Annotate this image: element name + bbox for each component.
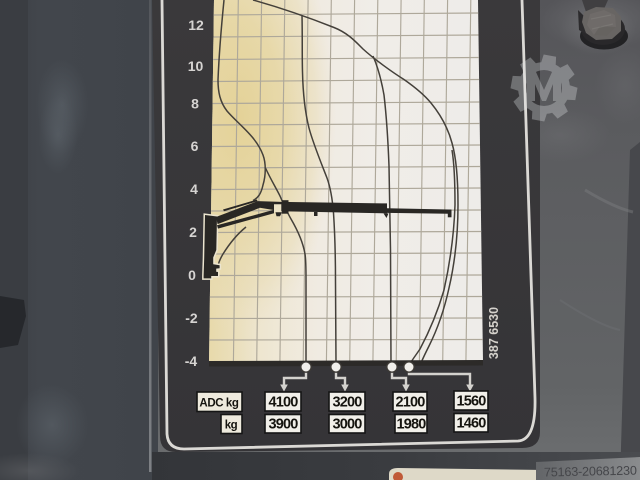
svg-text:8: 8 (191, 96, 199, 112)
svg-text:12: 12 (188, 17, 204, 33)
svg-text:ADC kg: ADC kg (199, 398, 239, 410)
svg-text:4: 4 (190, 181, 198, 197)
svg-text:-4: -4 (185, 353, 198, 369)
svg-text:3200: 3200 (332, 395, 362, 411)
svg-text:1980: 1980 (396, 417, 426, 433)
svg-text:3000: 3000 (332, 417, 362, 433)
svg-text:-2: -2 (185, 310, 198, 326)
svg-text:2100: 2100 (395, 395, 425, 411)
svg-text:3900: 3900 (268, 417, 298, 433)
svg-text:0: 0 (188, 267, 196, 283)
svg-text:1460: 1460 (456, 416, 486, 432)
svg-text:10: 10 (188, 58, 204, 74)
svg-text:387 6530: 387 6530 (487, 307, 501, 359)
svg-text:4100: 4100 (268, 395, 298, 411)
svg-text:kg: kg (225, 420, 238, 432)
svg-text:6: 6 (191, 138, 199, 154)
svg-text:75163-20681230: 75163-20681230 (544, 464, 637, 480)
svg-text:1560: 1560 (456, 394, 486, 410)
svg-text:2: 2 (189, 224, 197, 240)
